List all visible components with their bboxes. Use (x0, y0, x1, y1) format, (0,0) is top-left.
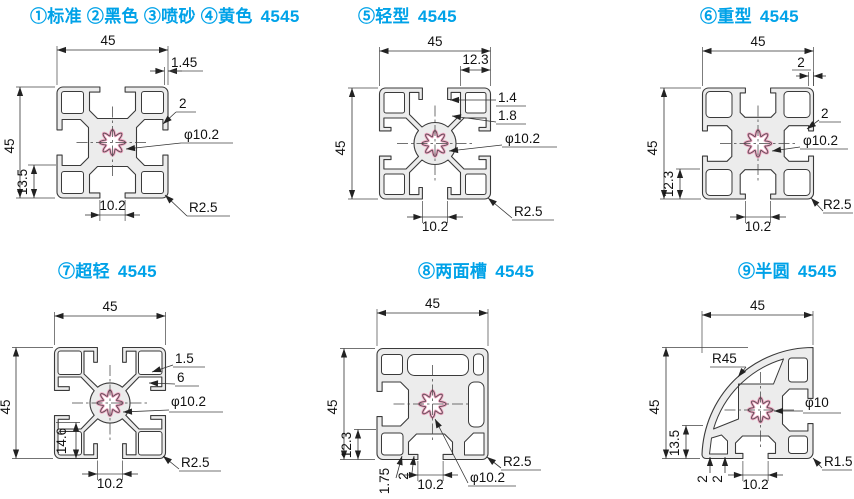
dim-lip: 6 (177, 370, 185, 385)
dim-width: 45 (100, 33, 115, 48)
panel-twoface: 45 45 12.3 1.75 2 10.2 φ10.2 R2.5 (300, 255, 600, 499)
dim-bore: φ10.2 (803, 133, 838, 148)
corner-cavity (789, 436, 808, 454)
dim-slot: 10.2 (99, 198, 125, 213)
dim-arc-radius: R45 (712, 351, 737, 366)
dim-offset: 14.6 (54, 428, 69, 454)
profile-heavy (703, 88, 814, 199)
corner-cavity (142, 92, 164, 114)
drawing-halfround: 45 R45 φ10 45 13.5 2 2 10.2 R1.5 (600, 255, 854, 499)
dim-wall: 1.45 (171, 55, 197, 70)
profile-light (380, 88, 491, 199)
corner-cavity (784, 170, 810, 196)
top-cavity (408, 355, 469, 376)
dim-wall1: 2 (695, 475, 710, 483)
dim-width: 45 (427, 34, 442, 49)
dim-lip: 2 (179, 96, 187, 111)
dim-wall1: 1.75 (377, 468, 392, 494)
corner-cavity (706, 170, 732, 196)
dim-slot: 10.2 (745, 219, 771, 234)
dim-bore: φ10 (805, 395, 829, 410)
corner-cavity (62, 172, 84, 194)
profile-ultralight (55, 348, 166, 459)
dim-slot: 10.2 (417, 477, 443, 492)
dim-wall2: 2 (396, 472, 411, 480)
dim-height: 45 (325, 399, 340, 414)
corner-cavity (382, 433, 404, 455)
dim-width: 45 (425, 296, 440, 311)
dim-wall: 1.5 (175, 351, 194, 366)
corner-cavity (62, 92, 84, 114)
panel-ultralight: 45 1.5 6 φ10.2 45 14.6 10.2 R2.5 (0, 255, 300, 499)
dim-radius: R2.5 (503, 454, 532, 469)
dim-plate: 1.8 (498, 108, 517, 123)
dim-offset: 12.3 (339, 432, 354, 458)
corner-cavity (466, 93, 487, 114)
dim-lip: 2 (821, 106, 829, 121)
profile-standard (57, 87, 168, 198)
dim-width: 45 (750, 34, 765, 49)
panel-halfround: 45 R45 φ10 45 13.5 2 2 10.2 R1.5 (600, 255, 854, 499)
dim-boxwidth: 12.3 (462, 52, 488, 67)
corner-cavity (382, 355, 403, 375)
dim-lip: 1.4 (498, 90, 517, 105)
corner-cavity (474, 354, 484, 375)
dim-slot: 10.2 (742, 477, 768, 492)
dim-height: 45 (647, 399, 662, 414)
dim-radius: R2.5 (189, 200, 218, 215)
drawing-light: 45 12.3 1.4 1.8 45 φ10.2 10.2 R2.5 (300, 0, 600, 255)
dim-radius: R2.5 (514, 204, 543, 219)
corner-cavity (384, 174, 405, 195)
corner-cavity (384, 93, 405, 114)
dim-height: 45 (0, 399, 13, 414)
dim-slot: 10.2 (97, 476, 123, 491)
corner-cavity (466, 174, 487, 195)
corner-cavity (784, 92, 810, 118)
panel-heavy: 45 2 2 φ10.2 45 12.3 10.2 R2.5 (620, 0, 854, 255)
dim-offset: 12.3 (661, 171, 676, 197)
corner-cavity (710, 435, 728, 454)
dim-wall: 2 (797, 55, 805, 70)
corner-cavity (139, 432, 163, 456)
corner-cavity (142, 172, 164, 194)
dim-wall2: 2 (710, 475, 725, 483)
dim-radius: R2.5 (823, 197, 852, 212)
corner-cavity (789, 358, 808, 382)
corner-cavity (139, 351, 163, 375)
dim-height: 45 (645, 140, 660, 155)
dim-width: 45 (750, 298, 765, 313)
dim-radius: R2.5 (181, 455, 210, 470)
drawing-ultralight: 45 1.5 6 φ10.2 45 14.6 10.2 R2.5 (0, 255, 300, 499)
dim-bore: φ10.2 (171, 394, 206, 409)
dim-bore: φ10.2 (184, 127, 219, 142)
drawing-twoface: 45 45 12.3 1.75 2 10.2 φ10.2 R2.5 (300, 255, 600, 499)
dim-bore: φ10.2 (470, 470, 505, 485)
side-cavity (469, 382, 485, 427)
drawing-standard: 45 1.45 45 2 φ10.2 13.5 10.2 R2. (0, 0, 300, 255)
panel-standard: 45 1.45 45 2 φ10.2 13.5 10.2 R2. (0, 0, 300, 255)
dim-bore: φ10.2 (505, 131, 540, 146)
drawing-heavy: 45 2 2 φ10.2 45 12.3 10.2 R2.5 (620, 0, 854, 255)
corner-cavity (706, 92, 732, 118)
dim-width: 45 (102, 299, 117, 314)
dim-height: 45 (333, 140, 348, 155)
dim-offset: 13.5 (15, 169, 30, 195)
corner-cavity (58, 351, 82, 375)
panel-light: 45 12.3 1.4 1.8 45 φ10.2 10.2 R2.5 (300, 0, 600, 255)
dim-radius: R1.5 (824, 454, 853, 469)
dim-height: 45 (2, 138, 17, 153)
catalog-drawing-sheet: ①标准 ②黑色 ③喷砂 ④黄色4545 ⑤轻型4545 ⑥重型4545 ⑦超轻4… (0, 0, 854, 499)
dim-slot: 10.2 (422, 219, 448, 234)
dim-offset: 13.5 (667, 430, 682, 456)
profile-twoface (377, 349, 488, 460)
